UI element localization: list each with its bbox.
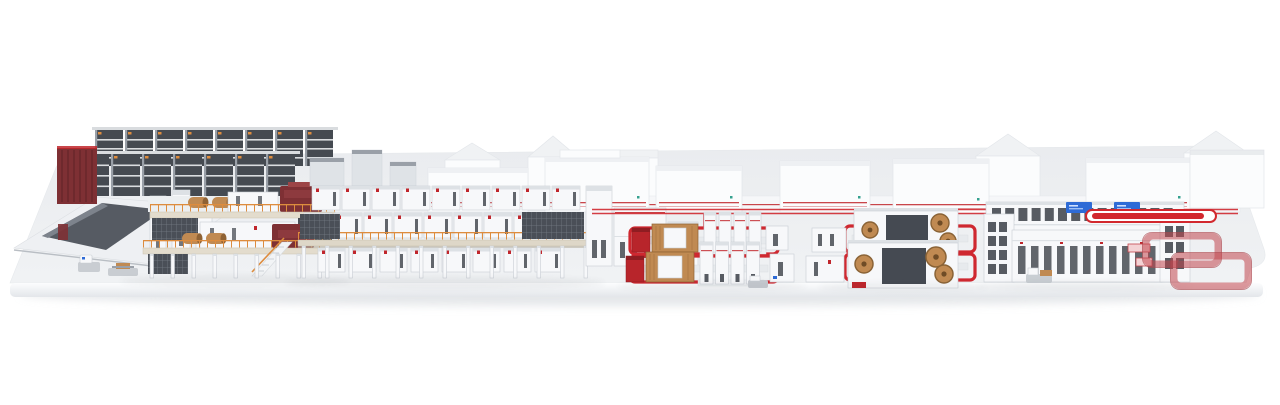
dark-slot: [1032, 208, 1041, 221]
rack-bay: [111, 154, 140, 196]
support-column: [150, 254, 154, 278]
prefeeder-back: [632, 224, 698, 252]
dark-slot: [1096, 246, 1104, 274]
mesh-panels-lower: [148, 254, 188, 274]
machine-module: [424, 213, 452, 238]
support-column: [349, 246, 353, 278]
rack-bay: [204, 154, 233, 196]
support-column: [396, 246, 400, 278]
support-column: [561, 246, 565, 278]
machine-module: [522, 186, 550, 210]
background-cabinet: [893, 159, 989, 214]
corrugator-upper-row: [312, 186, 580, 210]
background-cabinet: [780, 161, 870, 212]
machine-module: [318, 248, 345, 272]
logo-dot-icon: [977, 198, 980, 201]
support-column: [443, 246, 447, 278]
support-column: [467, 246, 471, 278]
machine-module: [552, 186, 580, 210]
gable-roof: [976, 134, 1040, 156]
sorter-capsule: [1086, 210, 1216, 222]
machine-module: [473, 248, 500, 272]
folder-gluer-tower: [716, 242, 729, 284]
background-cabinet: [656, 166, 742, 212]
machine-module: [504, 248, 531, 272]
machine-module: [349, 248, 376, 272]
safety-fence-panel: [148, 254, 188, 274]
dark-slot: [1057, 246, 1065, 274]
support-column: [420, 246, 424, 278]
support-column: [373, 246, 377, 278]
logo-dot-icon: [1178, 196, 1181, 199]
dark-slot: [1018, 246, 1026, 274]
folder-gluer-tower: [731, 242, 744, 284]
support-column: [326, 246, 330, 278]
machine-module: [342, 186, 370, 210]
support-column: [213, 254, 217, 278]
dark-slot: [1070, 246, 1078, 274]
support-column: [302, 246, 306, 278]
machine-module: [312, 186, 340, 210]
folder-gluer-tower: [700, 242, 713, 284]
bridge-deck: [298, 240, 588, 246]
support-column: [276, 254, 280, 278]
dark-slot: [1045, 208, 1054, 221]
support-column: [490, 246, 494, 278]
machine-module: [462, 186, 490, 210]
dark-slot: [1058, 208, 1067, 221]
dark-slot: [1109, 246, 1117, 274]
safety-fence-panel: [522, 212, 584, 239]
rack-bay: [173, 154, 202, 196]
logo-dot-icon: [637, 196, 640, 199]
support-column: [234, 254, 238, 278]
logo-dot-icon: [730, 196, 733, 199]
dark-slot: [1018, 208, 1027, 221]
support-column: [514, 246, 518, 278]
support-column: [192, 254, 196, 278]
machine-module: [492, 186, 520, 210]
support-column: [255, 254, 259, 278]
warehouse: [1190, 150, 1264, 208]
logo-dot-icon: [858, 196, 861, 199]
support-column: [171, 254, 175, 278]
machine-module: [380, 248, 407, 272]
rack-bay: [235, 154, 264, 196]
safety-fence-panel: [300, 214, 340, 239]
red-cabinet: [58, 224, 68, 240]
rack-bay: [142, 154, 171, 196]
plant-render: [0, 0, 1280, 405]
machine-module: [411, 248, 438, 272]
machine-module: [394, 213, 422, 238]
prefeeder-front: [626, 252, 694, 282]
dark-slot: [1083, 246, 1091, 274]
dark-slot: [1044, 246, 1052, 274]
machine-module: [402, 186, 430, 210]
machine-module: [432, 186, 460, 210]
support-column: [537, 246, 541, 278]
gable-roof: [445, 143, 500, 160]
background-cabinet: [560, 150, 620, 158]
scene-svg: [0, 0, 1280, 405]
machine-module: [372, 186, 400, 210]
support-column: [297, 254, 301, 278]
die-cutter-front: [848, 240, 958, 288]
